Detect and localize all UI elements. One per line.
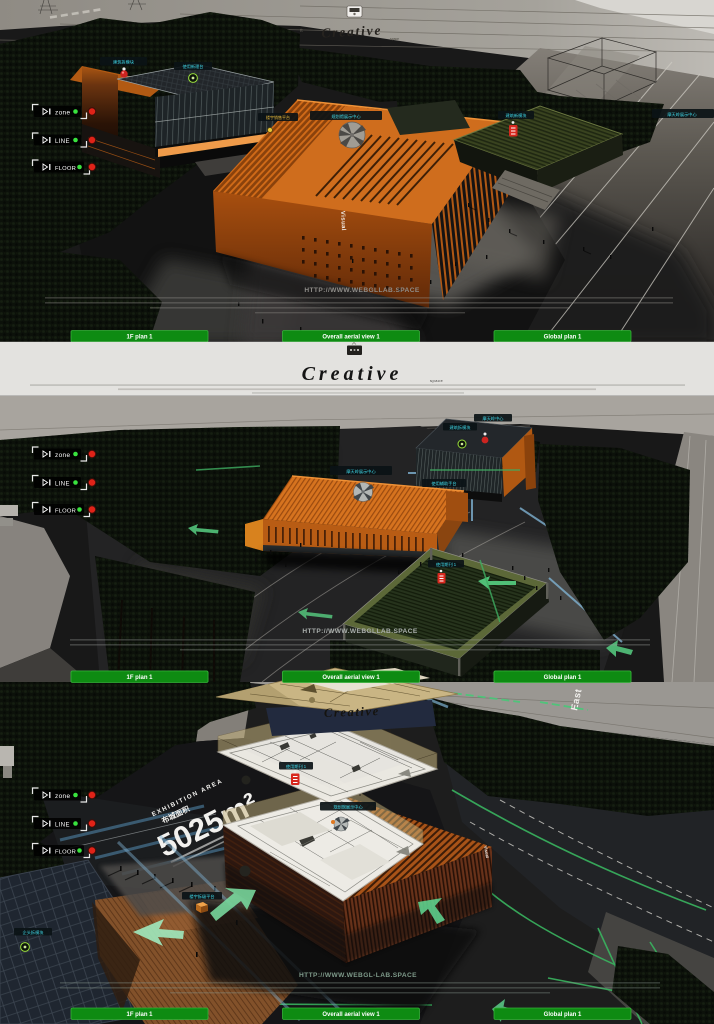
svg-text:摩天岭展示中心: 摩天岭展示中心 (346, 468, 376, 475)
svg-text:规划馆展示中心: 规划馆展示中心 (331, 113, 361, 120)
svg-text:Creative: Creative (321, 22, 383, 40)
svg-text:Global plan 1: Global plan 1 (544, 335, 582, 341)
svg-text:space: space (390, 37, 399, 41)
svg-text:1F plan 1: 1F plan 1 (126, 335, 153, 341)
svg-text:LINE: LINE (55, 139, 70, 145)
svg-text:Overall aerial view 1: Overall aerial view 1 (322, 675, 380, 681)
svg-text:使用期刊 1: 使用期刊 1 (286, 763, 307, 770)
svg-text:摩天岭中心: 摩天岭中心 (483, 415, 505, 422)
svg-text:楼宇销售平台: 楼宇销售平台 (266, 114, 290, 120)
svg-text:Global plan 1: Global plan 1 (544, 675, 582, 681)
svg-text:Creative: Creative (324, 704, 380, 720)
svg-text:使用辅助手台: 使用辅助手台 (431, 480, 456, 487)
svg-text:Global plan 1: Global plan 1 (544, 1012, 582, 1018)
svg-text:摩天岭展示中心: 摩天岭展示中心 (667, 111, 697, 118)
svg-text:zone: zone (55, 109, 71, 116)
svg-text:使用新理台: 使用新理台 (183, 63, 204, 70)
svg-text:HTTP://WWW.WEBGLLAB.SPACE: HTTP://WWW.WEBGLLAB.SPACE (304, 287, 420, 294)
svg-text:HTTP://WWW.WEBGLLAB.SPACE: HTTP://WWW.WEBGLLAB.SPACE (302, 628, 418, 635)
svg-text:建筑新模块: 建筑新模块 (506, 112, 528, 119)
svg-text:1F plan 1: 1F plan 1 (126, 1012, 153, 1018)
svg-text:楼宇拆级平台: 楼宇拆级平台 (189, 893, 214, 900)
svg-text:HTTP://WWW.WEBGL-LAB.SPACE: HTTP://WWW.WEBGL-LAB.SPACE (299, 972, 417, 979)
svg-text:企头拆模块: 企头拆模块 (23, 929, 45, 936)
svg-text:建筑拆模块: 建筑拆模块 (113, 59, 135, 66)
svg-text:Creative: Creative (302, 363, 403, 385)
svg-text:规划馆展示中心: 规划馆展示中心 (333, 804, 363, 811)
svg-text:FLOOR: FLOOR (55, 166, 76, 172)
svg-text:使用期刊 1: 使用期刊 1 (436, 561, 457, 568)
svg-text:建筑拆模块: 建筑拆模块 (450, 424, 472, 431)
svg-text:Overall aerial view 1: Overall aerial view 1 (322, 1012, 380, 1018)
svg-text:Overall aerial view 1: Overall aerial view 1 (322, 335, 380, 341)
svg-text:Visual: Visual (339, 211, 346, 231)
svg-text:space: space (430, 378, 443, 383)
svg-text:1F plan 1: 1F plan 1 (126, 675, 153, 681)
